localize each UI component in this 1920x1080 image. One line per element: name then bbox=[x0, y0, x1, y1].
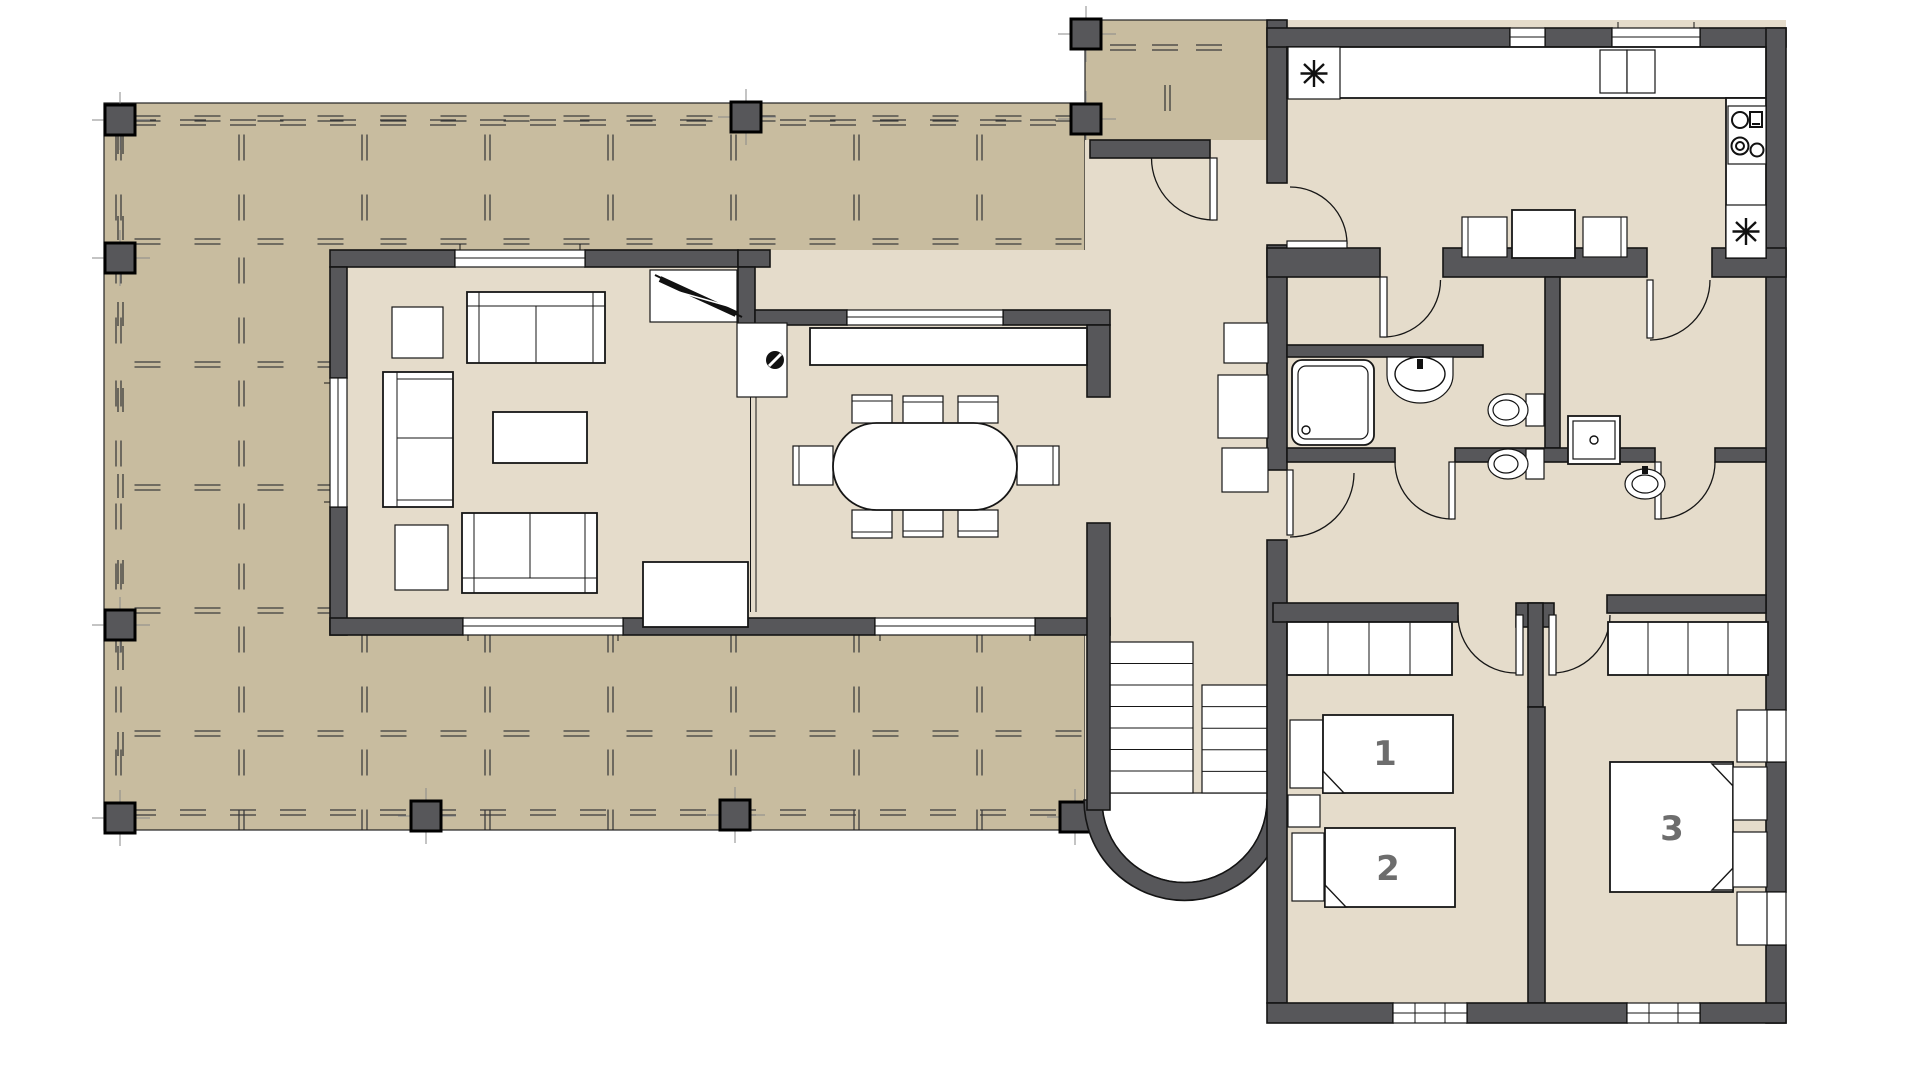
fireplace bbox=[650, 270, 742, 322]
floor-plan: 1 2 3 bbox=[0, 0, 1920, 1080]
window-bedroom3-bottom bbox=[1627, 1003, 1700, 1023]
tv-cabinet bbox=[643, 562, 748, 627]
window-bedroom3-right-lower bbox=[1737, 892, 1786, 945]
dining-chair bbox=[852, 395, 892, 423]
dining-chair bbox=[903, 510, 943, 537]
dining-chair bbox=[903, 396, 943, 423]
dining-chair bbox=[958, 396, 998, 423]
kitchen-table bbox=[1462, 210, 1627, 258]
bed-label: 2 bbox=[1376, 849, 1400, 889]
kitchen-chair bbox=[1583, 217, 1627, 257]
coffee-table bbox=[493, 412, 587, 463]
faucet-icon bbox=[1642, 466, 1648, 474]
bed-1: 1 bbox=[1290, 715, 1453, 793]
sink-icon bbox=[1733, 218, 1760, 245]
sink-icon bbox=[1301, 60, 1328, 87]
bed-label: 3 bbox=[1660, 809, 1684, 849]
stove-icon bbox=[1728, 106, 1766, 164]
wardrobe-bedroom3 bbox=[1608, 622, 1768, 675]
toilet bbox=[1488, 394, 1544, 426]
stove-passthrough bbox=[737, 323, 787, 397]
window-kitchen-top-small bbox=[1510, 28, 1545, 47]
bathtub bbox=[1292, 360, 1374, 445]
dining-table bbox=[833, 423, 1017, 510]
nightstand bbox=[1288, 795, 1320, 827]
sofa-left bbox=[383, 372, 453, 507]
bed-label: 1 bbox=[1373, 734, 1397, 774]
bed-3: 3 bbox=[1610, 762, 1733, 892]
dining-chair bbox=[852, 510, 892, 538]
entry-porch bbox=[1058, 6, 1270, 147]
stair-flight-upper bbox=[1102, 642, 1193, 793]
stair-flight-lower bbox=[1202, 685, 1267, 793]
dining-chair bbox=[1017, 446, 1059, 485]
kitchen-chair bbox=[1462, 217, 1507, 257]
sofa-bottom bbox=[462, 513, 597, 593]
hall-furniture bbox=[1218, 323, 1268, 492]
fridge bbox=[1600, 50, 1655, 93]
armchair bbox=[392, 307, 443, 358]
sofa-top bbox=[467, 292, 605, 363]
faucet-icon bbox=[1417, 359, 1423, 369]
dining-chair bbox=[958, 510, 998, 537]
window-bedroom1-bottom bbox=[1393, 1003, 1467, 1023]
hall-cabinet bbox=[1222, 448, 1268, 492]
nightstand bbox=[1733, 832, 1767, 887]
wardrobe-bedroom1 bbox=[1287, 622, 1452, 675]
nightstand bbox=[1733, 767, 1767, 820]
armchair bbox=[395, 525, 448, 590]
window-dining-top bbox=[847, 310, 1003, 325]
bed-2: 2 bbox=[1292, 828, 1455, 907]
hall-cabinet bbox=[1224, 323, 1268, 363]
shower bbox=[1568, 416, 1620, 464]
kitchen-counter-top bbox=[1287, 47, 1766, 98]
porch-slab bbox=[1085, 20, 1270, 141]
window-bedroom3-right-upper bbox=[1737, 710, 1786, 762]
sideboard bbox=[810, 328, 1087, 365]
hall-cabinet bbox=[1218, 375, 1268, 438]
bidet bbox=[1488, 449, 1544, 479]
dining-chair bbox=[793, 446, 833, 485]
